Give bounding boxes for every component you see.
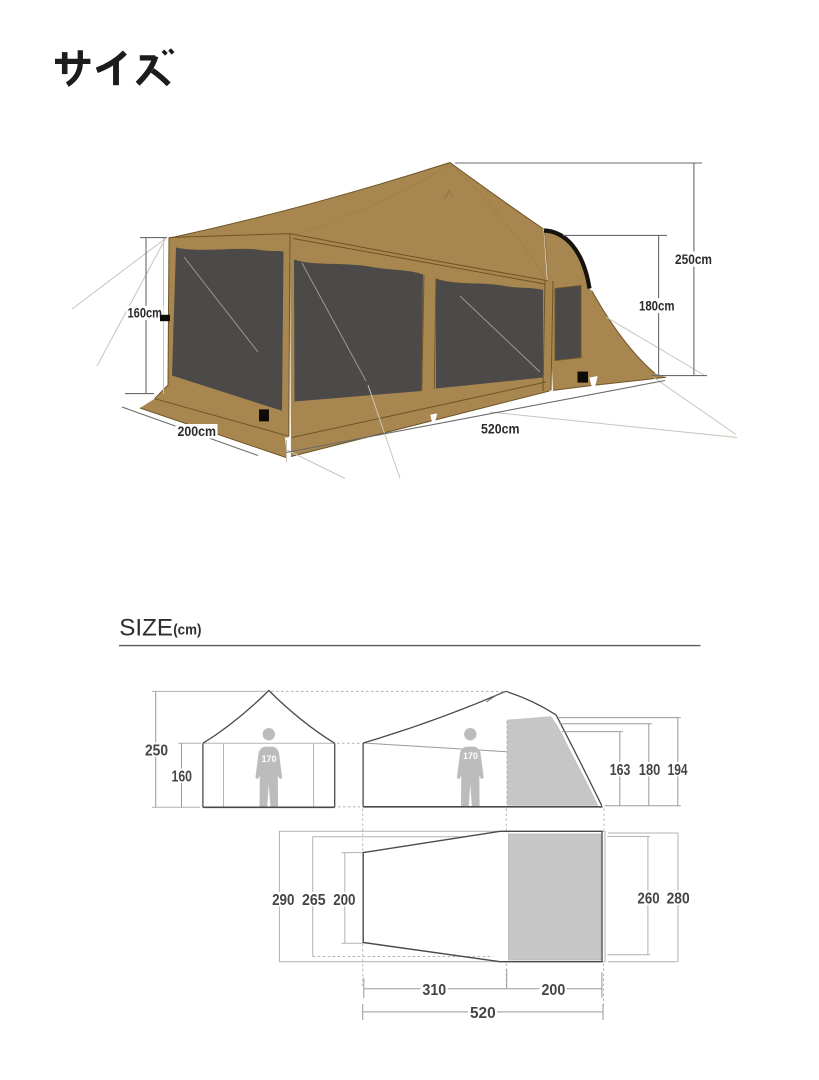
svg-text:180: 180 (639, 762, 661, 779)
svg-text:170: 170 (463, 751, 478, 761)
svg-text:280: 280 (667, 891, 690, 908)
svg-text:250cm: 250cm (675, 251, 712, 267)
svg-text:163: 163 (610, 762, 631, 779)
svg-text:250: 250 (145, 743, 168, 760)
svg-text:200cm: 200cm (178, 423, 217, 439)
svg-text:260: 260 (638, 891, 660, 908)
svg-text:520: 520 (470, 1005, 496, 1022)
svg-text:290: 290 (272, 892, 294, 909)
svg-text:160cm: 160cm (128, 305, 163, 321)
svg-text:(cm): (cm) (173, 621, 201, 638)
svg-text:170: 170 (262, 754, 277, 764)
svg-text:520cm: 520cm (481, 421, 520, 437)
svg-text:265: 265 (302, 892, 326, 909)
svg-text:180cm: 180cm (639, 298, 675, 314)
svg-text:SIZE: SIZE (119, 614, 173, 641)
svg-text:194: 194 (668, 762, 688, 779)
svg-text:160: 160 (172, 769, 193, 786)
svg-text:200: 200 (333, 892, 355, 909)
svg-text:200: 200 (542, 982, 566, 999)
svg-text:310: 310 (422, 982, 446, 999)
